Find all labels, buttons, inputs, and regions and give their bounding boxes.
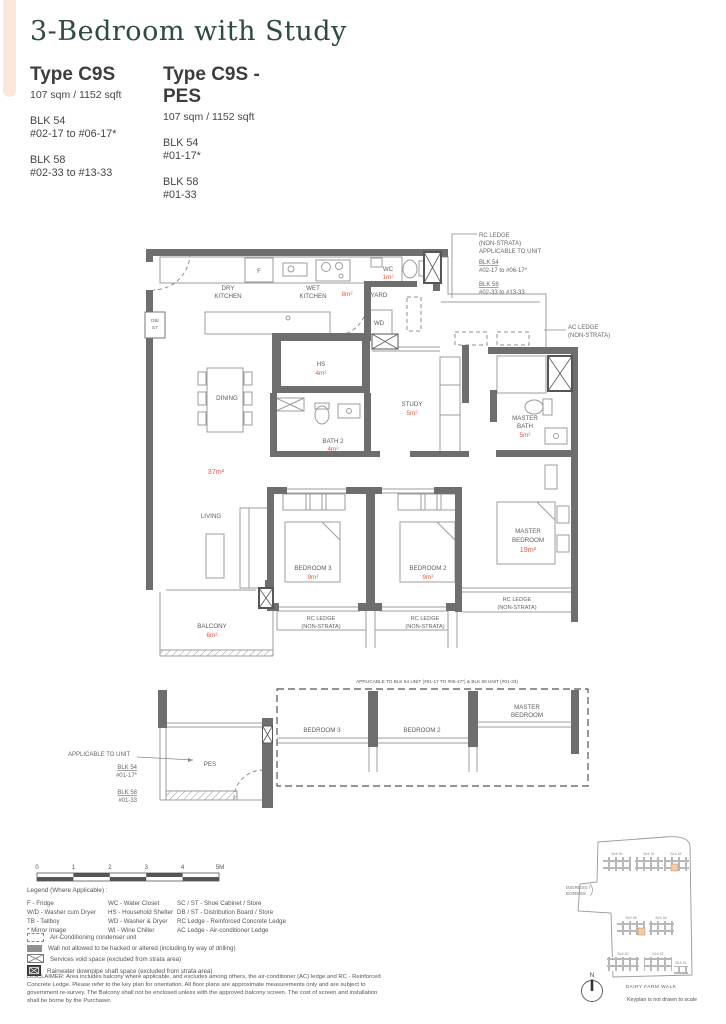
pes-top-note: APPLICABLE TO BLK 54 UNIT (#01-17 TO #06… — [356, 679, 518, 684]
scale-tick: 3 — [144, 864, 148, 871]
label-rc-ledge: (NON-STRATA) — [301, 624, 340, 630]
ac-condenser-icon — [27, 933, 44, 942]
services-void-icon — [27, 954, 44, 965]
room-label-master-bedroom: MASTER — [515, 528, 541, 535]
area-master-bedroom: 19m² — [520, 545, 537, 554]
keyplan-block-label: BLK 58 — [625, 916, 636, 920]
scale-tick: 1 — [72, 864, 76, 871]
label-rc-ledge: (NON-STRATA) — [497, 605, 536, 611]
area-wc: 1m² — [382, 274, 393, 281]
legend-item: F - Fridge — [27, 899, 96, 908]
label-rc-ledge: RC LEDGE — [503, 597, 532, 603]
scale-tick: 5M — [216, 864, 225, 871]
disclaimer-text: DISCLAIMER: Area includes balcony where … — [27, 974, 385, 1006]
rc-ledge-note: (NON-STRATA) — [479, 241, 521, 247]
label-fridge: F — [257, 268, 261, 275]
legend-item: WC - Water Closet — [108, 899, 173, 908]
legend-item: RC Ledge - Reinforced Concrete Ledge — [177, 917, 286, 926]
rc-note-units: #02-33 to #13-33 — [479, 290, 525, 296]
plan-annotations: RC LEDGE (NON-STRATA) APPLICABLE TO UNIT… — [479, 233, 610, 339]
floorplan-page: 3-Bedroom with Study Type C9S 107 sqm / … — [0, 0, 726, 1024]
rc-ledge-note: RC LEDGE — [479, 233, 510, 239]
pes-note-blk: BLK 58 — [117, 790, 137, 796]
area-study: 5m² — [406, 410, 417, 417]
room-label-bedroom3-pes: BEDROOM 3 — [303, 727, 341, 734]
room-label-hs: HS — [317, 361, 326, 368]
room-label-wet-kitchen: WET — [306, 285, 320, 292]
room-label-yard: YARD — [371, 292, 388, 299]
room-label-bedroom2: BEDROOM 2 — [409, 565, 447, 572]
room-label-bedroom3: BEDROOM 3 — [294, 565, 332, 572]
legend-item: DB / ST - Distribution Board / Store — [177, 908, 286, 917]
north-label: N — [590, 972, 595, 979]
area-living-dining: 37m² — [208, 467, 225, 476]
room-label-wd: WD — [374, 320, 385, 327]
ac-ledge-note: AC LEDGE — [568, 325, 598, 331]
keyplan-block-label: BLK 64 — [675, 961, 686, 965]
legend-symbol-text: Services void space (excluded from strat… — [50, 956, 181, 963]
rc-note-blk: BLK 54 — [479, 260, 499, 266]
legend-symbol-row: Services void space (excluded from strat… — [27, 955, 236, 963]
main-floorplan-linework — [145, 234, 578, 656]
rc-note-blk: BLK 58 — [479, 282, 499, 288]
legend-column-3: SC / ST - Shoe Cabinet / Store DB / ST -… — [177, 899, 286, 935]
room-label-pes: PES — [204, 761, 216, 768]
keyplan: BLK 50 BLK 52 BLK 54 BLK 58 BLK 56 BLK 6… — [566, 837, 697, 1003]
restricted-wall-icon — [27, 945, 42, 952]
keyplan-block-label: BLK 62 — [652, 952, 663, 956]
legend-item: WD - Washer & Dryer — [108, 917, 173, 926]
scale-bar: 0 1 2 3 4 5M — [35, 864, 224, 881]
room-label-db-st: ST — [152, 325, 158, 331]
room-label-wc: WC — [383, 266, 394, 273]
area-bath2: 4m² — [327, 446, 338, 453]
label-rc-ledge: RC LEDGE — [411, 616, 440, 622]
keyplan-block-label: BLK 56 — [655, 916, 666, 920]
room-label-study: STUDY — [402, 401, 423, 408]
label-rc-ledge: RC LEDGE — [307, 616, 336, 622]
area-bedroom2: 9m² — [422, 574, 433, 581]
scale-tick: 0 — [35, 864, 39, 871]
keyplan-block-label: BLK 50 — [611, 852, 622, 856]
ac-ledge-note: (NON-STRATA) — [568, 333, 610, 339]
legend-title: Legend (Where Applicable) : — [27, 887, 108, 894]
room-label-bedroom2-pes: BEDROOM 2 — [403, 727, 441, 734]
area-wet-kitchen: 8m² — [341, 291, 352, 298]
legend-item: W/D - Washer cum Dryer — [27, 908, 96, 917]
keyplan-ingress-label: EGRESS — [566, 891, 586, 897]
legend-item: SC / ST - Shoe Cabinet / Store — [177, 899, 286, 908]
legend-item: TB - Tallboy — [27, 917, 96, 926]
pes-note-blk: BLK 54 — [117, 765, 137, 771]
scale-tick: 4 — [181, 864, 185, 871]
keyplan-ingress-label: INGRESS / — [566, 885, 591, 891]
room-label-master-bath: MASTER — [512, 415, 538, 422]
legend-symbol-row: Air-Conditioning condenser unit — [27, 933, 236, 941]
keyplan-block-label: BLK 60 — [617, 952, 628, 956]
area-balcony: 6m² — [206, 632, 217, 639]
room-label-master-bedroom: BEDROOM — [512, 537, 544, 544]
legend-column-2: WC - Water Closet HS - Household Shelter… — [108, 899, 173, 935]
keyplan-block-label: BLK 54 — [670, 852, 681, 856]
room-label-wet-kitchen: KITCHEN — [299, 293, 326, 300]
room-label-bath2: BATH 2 — [322, 438, 344, 445]
keyplan-note: Keyplan is not drawn to scale — [627, 997, 697, 1003]
room-label-dining: DINING — [216, 395, 238, 402]
room-label-dry-kitchen: DRY — [222, 285, 235, 292]
rc-ledge-note: APPLICABLE TO UNIT — [479, 249, 541, 255]
legend-symbol-text: Wall not allowed to be hacked or altered… — [48, 945, 236, 952]
room-label-master-pes: MASTER — [514, 704, 540, 711]
pes-note-units: #01-33 — [118, 798, 137, 804]
room-label-db-st: DB/ — [151, 318, 160, 324]
area-master-bath: 5m² — [519, 432, 530, 439]
legend-column-1: F - Fridge W/D - Washer cum Dryer TB - T… — [27, 899, 96, 935]
legend-item: HS - Household Shelter — [108, 908, 173, 917]
keyplan-street-label: DAIRY FARM WALK — [626, 984, 677, 990]
area-hs: 4m² — [315, 370, 326, 377]
rc-note-units: #02-17 to #06-17* — [479, 268, 528, 274]
scale-tick: 2 — [108, 864, 112, 871]
area-bedroom3: 9m² — [307, 574, 318, 581]
pes-left-note-title: APPLICABLE TO UNIT — [68, 752, 130, 758]
room-label-balcony: BALCONY — [197, 623, 227, 630]
keyplan-block-label: BLK 52 — [643, 852, 654, 856]
pes-note-units: #01-17* — [116, 773, 138, 779]
plan-canvas: DRY KITCHEN WET KITCHEN 8m² WC 1m² YARD … — [0, 0, 726, 1024]
room-label-living: LIVING — [201, 513, 221, 520]
legend-symbol-row: Wall not allowed to be hacked or altered… — [27, 944, 236, 952]
room-label-master-bath: BATH — [517, 423, 533, 430]
room-label-master-pes: BEDROOM — [511, 712, 543, 719]
label-rc-ledge: (NON-STRATA) — [405, 624, 444, 630]
legend-symbol-text: Air-Conditioning condenser unit — [50, 934, 136, 941]
legend-symbols: Air-Conditioning condenser unit Wall not… — [27, 933, 236, 980]
room-label-dry-kitchen: KITCHEN — [214, 293, 241, 300]
